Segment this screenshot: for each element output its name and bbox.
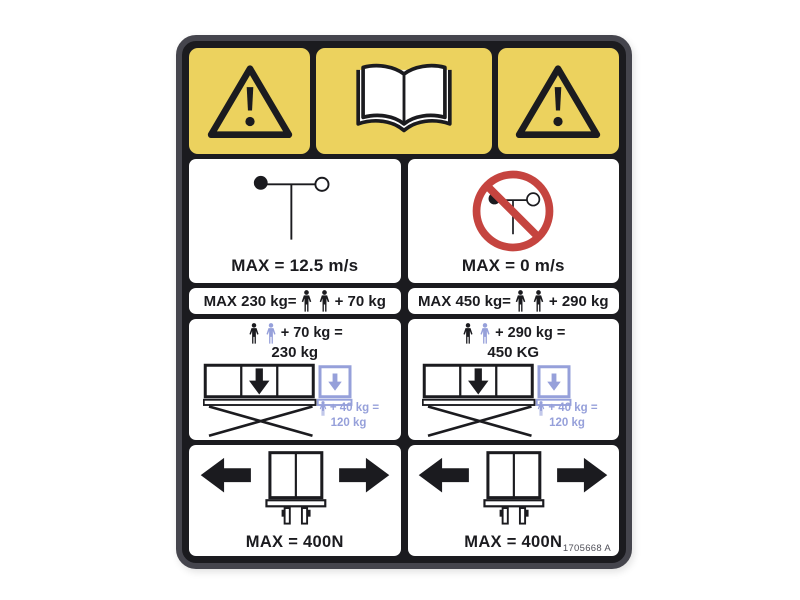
extension-sum-text: + 40 kg =	[330, 401, 379, 416]
extension-sum-text: + 40 kg =	[548, 401, 597, 416]
wind-prohibited-cell: MAX = 0 m/s	[408, 159, 620, 283]
platform-sum-line: + 70 kg =	[189, 323, 401, 344]
capacity-cell: MAX 230 kg= + 70 kg	[189, 288, 401, 314]
platform-sum-text: + 70 kg =	[281, 326, 343, 341]
warning-band-cell	[498, 48, 619, 154]
person-icon	[513, 290, 528, 312]
extension-total-text: 120 kg	[305, 416, 393, 431]
warning-band	[189, 48, 619, 154]
decal-columns: MAX = 12.5 m/s MAX 230 kg= + 70 kg + 70 …	[189, 159, 619, 556]
warning-triangle-icon	[206, 62, 294, 140]
person-extension-icon	[264, 323, 278, 344]
warning-band-cell	[189, 48, 310, 154]
platform-total-text: 450 KG	[408, 344, 620, 361]
person-extension-icon	[318, 401, 328, 416]
person-icon	[317, 290, 332, 312]
wind-max-label: MAX = 12.5 m/s	[231, 256, 358, 276]
extension-total-text: 120 kg	[523, 416, 611, 431]
column-retracted: MAX = 12.5 m/s MAX 230 kg= + 70 kg + 70 …	[189, 159, 401, 556]
platform-load-cell: + 70 kg = 230 kg + 40 kg = 120 kg	[189, 319, 401, 440]
person-icon	[531, 290, 546, 312]
wind-max-label: MAX = 0 m/s	[462, 256, 565, 276]
read-manual-book-icon	[350, 60, 458, 142]
platform-total-text: 230 kg	[189, 344, 401, 361]
scissor-lift-safety-decal: MAX = 12.5 m/s MAX 230 kg= + 70 kg + 70 …	[176, 35, 632, 569]
platform-sum-text: + 290 kg =	[495, 326, 565, 341]
capacity-prefix: MAX 230 kg=	[204, 293, 297, 310]
person-icon	[299, 290, 314, 312]
anemometer-icon	[244, 171, 346, 253]
wind-allowed-cell: MAX = 12.5 m/s	[189, 159, 401, 283]
anemometer-prohibited-icon	[465, 166, 561, 256]
person-extension-icon	[536, 401, 546, 416]
capacity-suffix: + 290 kg	[549, 293, 609, 310]
extension-load-note: + 40 kg = 120 kg	[523, 401, 611, 431]
platform-load-cell: + 290 kg = 450 KG + 40 kg = 120 kg	[408, 319, 620, 440]
warning-band-cell	[316, 48, 492, 154]
side-force-max-label: MAX = 400N	[246, 533, 344, 552]
person-icon	[247, 323, 261, 344]
person-extension-icon	[478, 323, 492, 344]
photo-background: MAX = 12.5 m/s MAX 230 kg= + 70 kg + 70 …	[0, 0, 800, 600]
side-force-cell: MAX = 400N	[408, 445, 620, 556]
side-force-cell: MAX = 400N	[189, 445, 401, 556]
capacity-cell: MAX 450 kg= + 290 kg	[408, 288, 620, 314]
warning-triangle-icon	[514, 62, 602, 140]
column-extended: MAX = 0 m/s MAX 450 kg= + 290 kg + 290 k…	[408, 159, 620, 556]
side-force-diagram	[199, 450, 391, 528]
side-force-max-label: MAX = 400N	[464, 533, 562, 552]
capacity-prefix: MAX 450 kg=	[418, 293, 511, 310]
platform-sum-line: + 290 kg =	[408, 323, 620, 344]
capacity-suffix: + 70 kg	[335, 293, 386, 310]
person-icon	[461, 323, 475, 344]
part-number: 1705668 A	[563, 543, 611, 554]
side-force-diagram	[417, 450, 609, 528]
extension-load-note: + 40 kg = 120 kg	[305, 401, 393, 431]
